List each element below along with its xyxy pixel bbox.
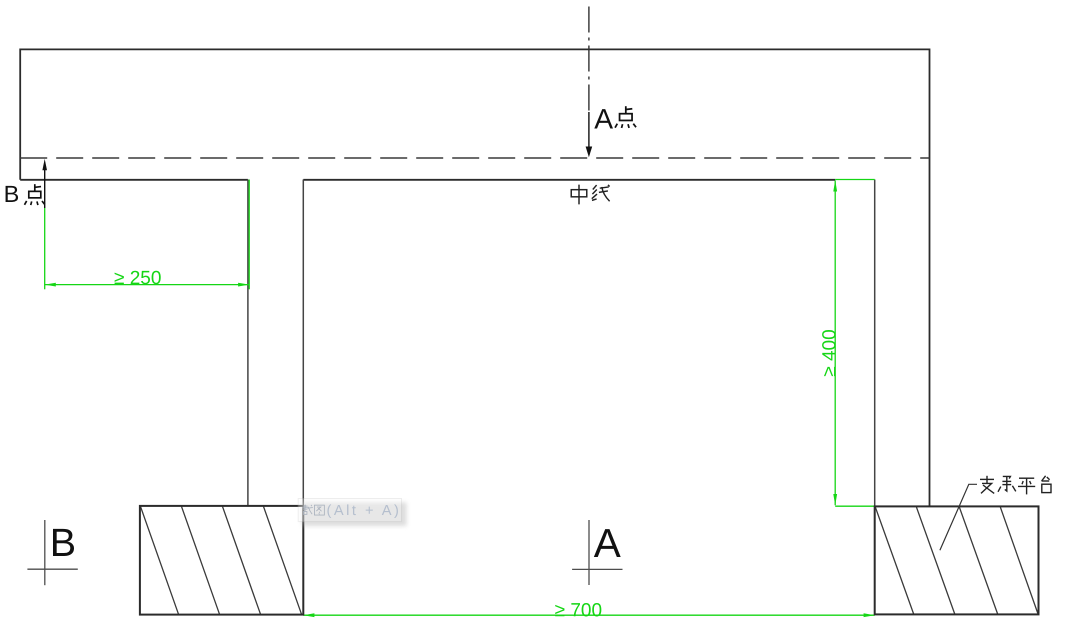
svg-text:≥ 400: ≥ 400	[819, 329, 840, 376]
svg-text:B: B	[4, 181, 20, 207]
svg-text:(Alt + A): (Alt + A)	[327, 503, 402, 519]
svg-text:B: B	[50, 521, 76, 565]
svg-text:A: A	[594, 103, 613, 135]
svg-text:A: A	[594, 520, 621, 566]
svg-text:≥ 700: ≥ 700	[555, 600, 602, 621]
svg-text:≥ 250: ≥ 250	[114, 268, 161, 289]
